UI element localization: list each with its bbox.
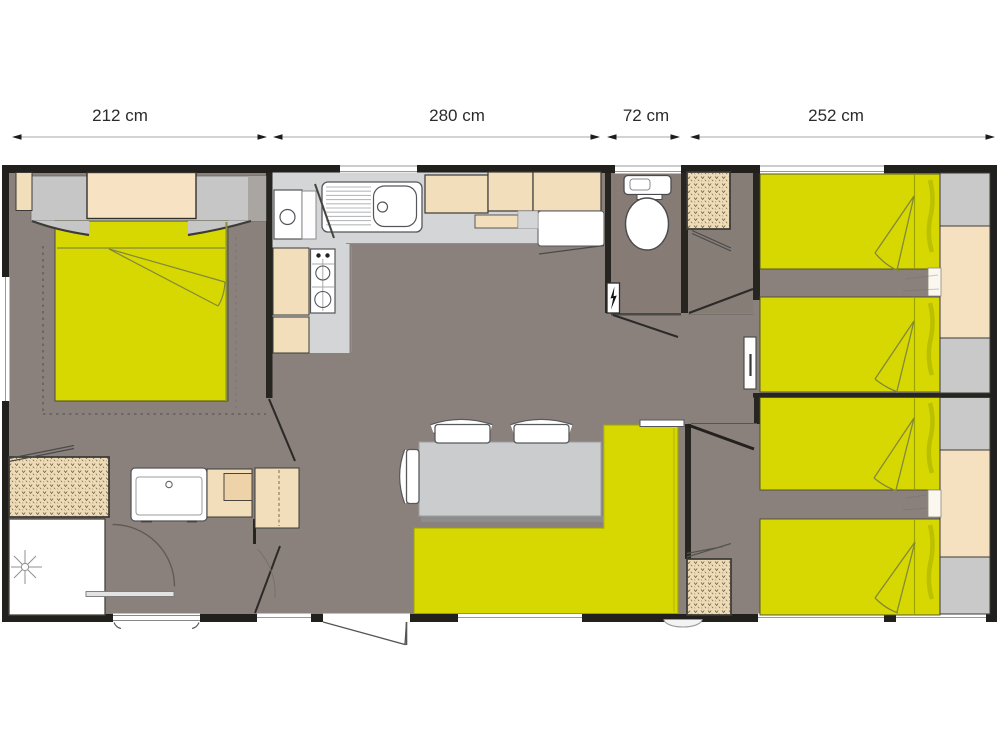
svg-text:72 cm: 72 cm	[623, 106, 669, 125]
svg-text:252 cm: 252 cm	[808, 106, 864, 125]
svg-text:212 cm: 212 cm	[92, 106, 148, 125]
svg-text:280 cm: 280 cm	[429, 106, 485, 125]
